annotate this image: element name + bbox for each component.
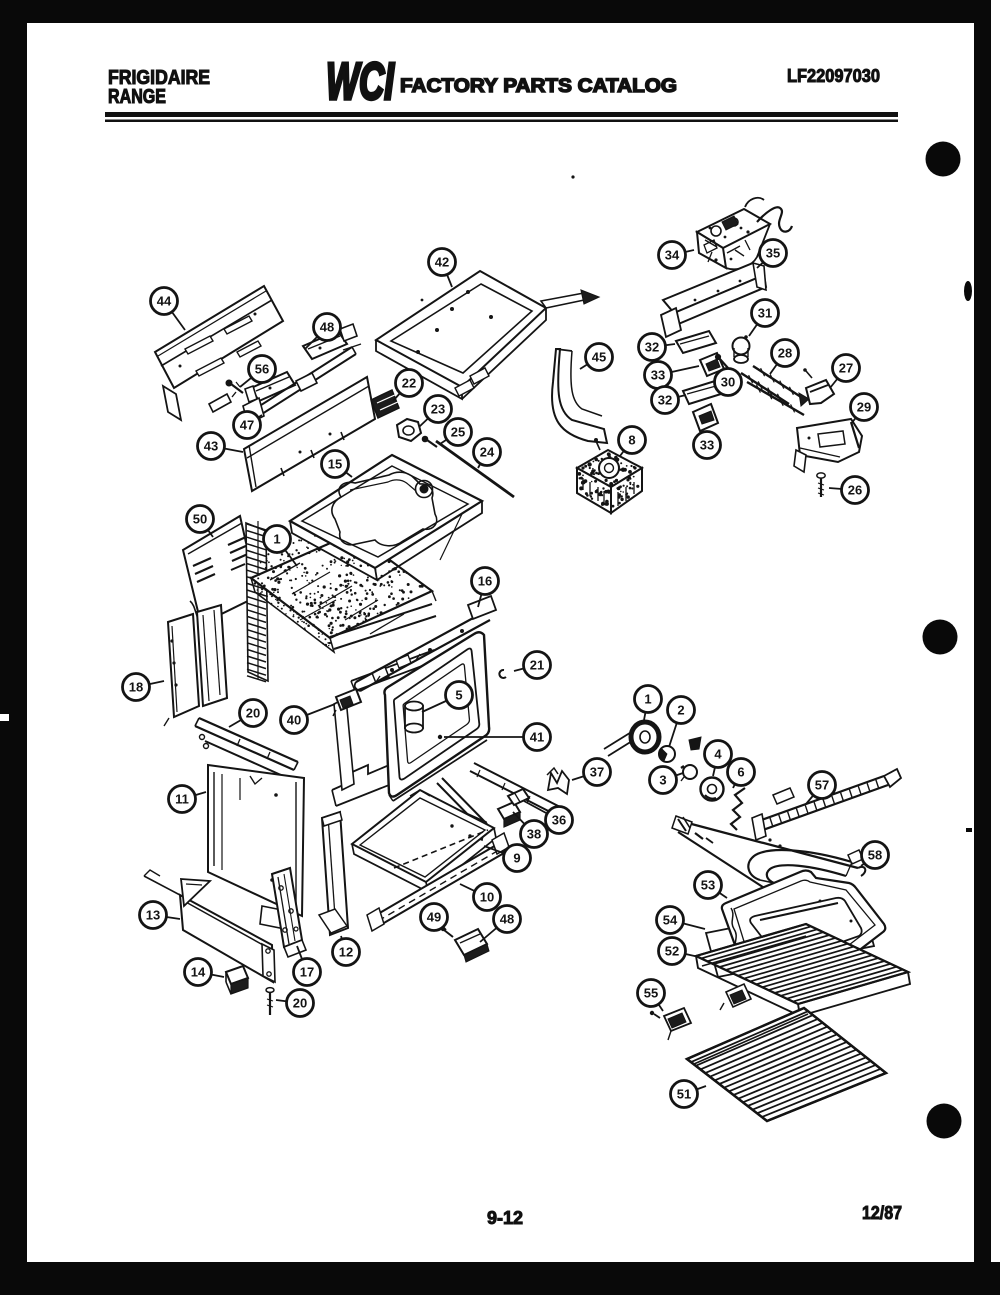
svg-text:44: 44 [157,294,172,309]
svg-text:53: 53 [701,878,715,893]
svg-text:9: 9 [513,851,520,866]
svg-text:12/87: 12/87 [862,1203,902,1223]
svg-text:4: 4 [714,747,722,762]
svg-text:23: 23 [431,402,445,417]
svg-text:22: 22 [402,376,416,391]
svg-text:10: 10 [480,890,494,905]
svg-text:40: 40 [287,713,301,728]
svg-text:52: 52 [665,944,679,959]
svg-text:3: 3 [659,773,666,788]
svg-text:25: 25 [451,425,465,440]
svg-text:30: 30 [721,375,735,390]
svg-text:8: 8 [628,433,635,448]
svg-text:55: 55 [644,986,658,1001]
svg-text:33: 33 [700,438,714,453]
svg-text:27: 27 [839,361,853,376]
svg-text:16: 16 [478,574,492,589]
svg-text:32: 32 [645,340,659,355]
svg-text:51: 51 [677,1087,691,1102]
svg-text:49: 49 [427,910,441,925]
svg-text:36: 36 [552,813,566,828]
svg-text:1: 1 [644,692,651,707]
svg-text:WCI: WCI [326,53,395,111]
svg-text:57: 57 [815,778,829,793]
svg-text:20: 20 [293,996,307,1011]
svg-text:48: 48 [500,912,514,927]
svg-text:28: 28 [778,346,792,361]
svg-text:LF22097030: LF22097030 [787,66,880,86]
svg-text:FACTORY PARTS CATALOG: FACTORY PARTS CATALOG [400,76,677,97]
svg-text:29: 29 [857,400,871,415]
svg-text:54: 54 [663,913,678,928]
svg-text:RANGE: RANGE [108,86,166,108]
svg-text:6: 6 [737,765,744,780]
svg-text:2: 2 [677,703,684,718]
svg-text:11: 11 [175,792,189,807]
svg-text:37: 37 [590,765,604,780]
svg-text:47: 47 [240,418,254,433]
svg-text:20: 20 [246,706,260,721]
svg-text:14: 14 [191,965,206,980]
svg-text:5: 5 [455,688,462,703]
svg-text:56: 56 [255,362,269,377]
svg-text:35: 35 [766,246,780,261]
svg-text:21: 21 [530,658,544,673]
svg-text:50: 50 [193,512,207,527]
svg-text:15: 15 [328,457,342,472]
svg-text:45: 45 [592,350,606,365]
svg-text:12: 12 [339,945,353,960]
svg-text:18: 18 [129,680,143,695]
svg-text:34: 34 [665,248,680,263]
svg-text:24: 24 [480,445,495,460]
svg-text:41: 41 [530,730,544,745]
svg-text:9-12: 9-12 [487,1208,523,1228]
svg-text:1: 1 [273,532,280,547]
svg-text:43: 43 [204,439,218,454]
svg-text:42: 42 [435,255,449,270]
svg-text:17: 17 [300,965,314,980]
svg-text:31: 31 [758,306,772,321]
svg-text:32: 32 [658,393,672,408]
svg-text:13: 13 [146,908,160,923]
svg-text:26: 26 [848,483,862,498]
svg-text:38: 38 [527,827,541,842]
svg-text:48: 48 [320,320,334,335]
svg-text:58: 58 [868,848,882,863]
svg-text:33: 33 [651,368,665,383]
